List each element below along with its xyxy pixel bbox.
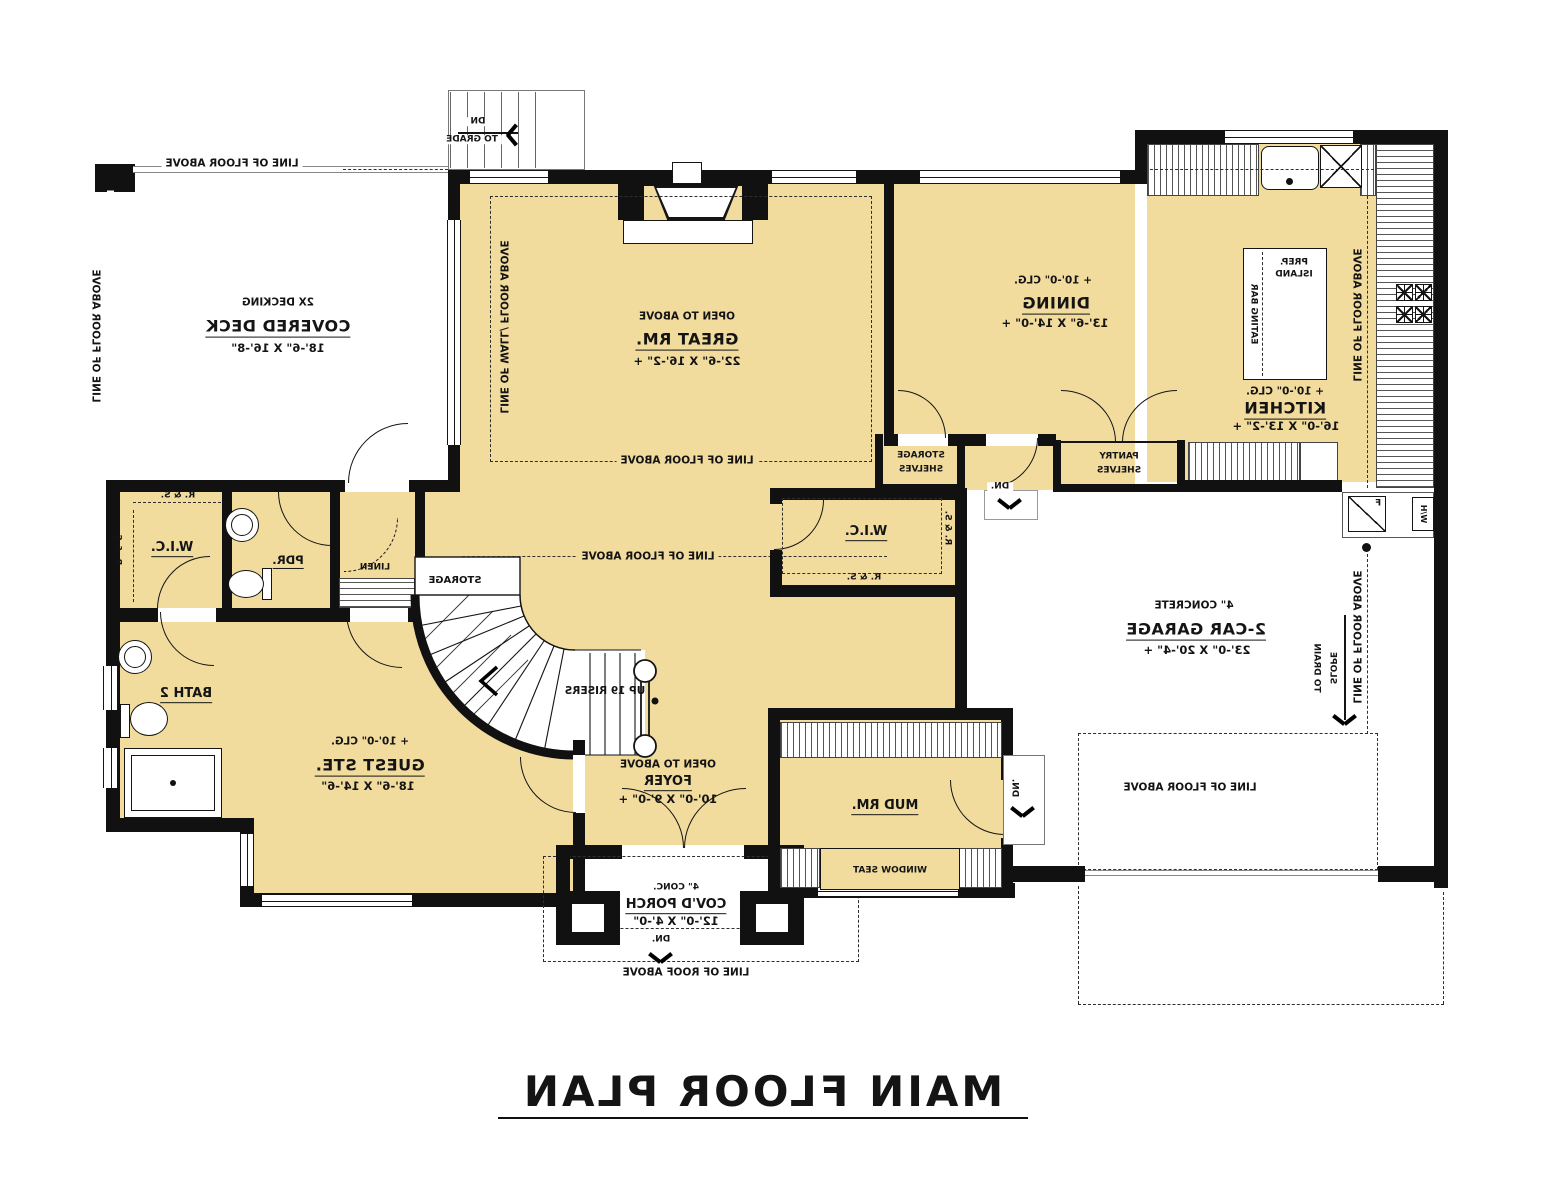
porch-dn-arrow-icon — [648, 952, 674, 964]
window-kitchen-top — [1225, 130, 1353, 144]
great-name: GREAT RM. — [636, 332, 739, 349]
stair-assembly: STORAGE UP 19 RISERS — [393, 543, 683, 778]
pantry-sub: SHELVES — [1097, 466, 1141, 475]
mud-window-seat: WINDOW SEAT — [853, 866, 927, 875]
wic1-shelf-dash-left — [133, 510, 134, 602]
garage-dim: 23'-0" X 20'-4" + — [1143, 644, 1250, 656]
mud-name: MUD RM. — [852, 799, 919, 813]
wic1-name: W.I.C. — [151, 541, 193, 555]
wall-great-dining-divider — [884, 184, 894, 434]
stair-up-risers-label: UP 19 RISERS — [565, 685, 646, 697]
mud-bench-right — [958, 848, 1002, 888]
mud-dn-arrow-icon — [1010, 806, 1036, 818]
kitchen-counter-bottom — [1188, 442, 1300, 482]
window-great-deck — [447, 220, 461, 445]
wall-wic2-south — [770, 585, 965, 597]
kitchen-clg: + 10'-0" CLG. — [1246, 386, 1324, 397]
wall-garage-west — [955, 488, 967, 720]
dining-name: DINING — [1022, 296, 1090, 313]
pdr-toilet-bowl — [228, 570, 264, 598]
kitchen-counter-top-right — [1360, 144, 1376, 196]
mud-bench-left — [780, 848, 820, 888]
cooktop-burner-4 — [1415, 306, 1432, 323]
garage-line-floor-above-right: LINE OF FLOOR ABOVE — [1350, 566, 1361, 707]
guest-dim: 18'-6" X 14'-6" — [321, 780, 414, 792]
window-guest-south — [262, 894, 412, 907]
kitchen-appliance-bottom — [1300, 442, 1338, 482]
wall-right-exterior — [1434, 130, 1448, 888]
garage-door-panel — [1085, 870, 1378, 876]
porch-column-left-core — [572, 904, 604, 932]
great-note: OPEN TO ABOVE — [639, 311, 735, 322]
deck-stair-treads — [450, 92, 536, 168]
wall-pdr-west — [222, 492, 232, 610]
page-title-underline — [498, 1117, 1028, 1119]
window-bath-1 — [103, 666, 118, 710]
window-great-top-2 — [772, 170, 856, 184]
wic1-shelf-dash-top — [133, 502, 221, 503]
kitchen-appliance-x — [1320, 145, 1362, 188]
deck-edge-left — [107, 190, 114, 483]
garage-dash-rect — [1078, 733, 1378, 870]
stair-storage-label: STORAGE — [428, 575, 481, 586]
wic1-rs-left: R. & S. — [112, 531, 121, 566]
fireplace-chimney-notch — [672, 162, 702, 184]
floor-plan-sheet: LINE OF FLOOR ABOVE LINE OF FLOOR ABOVE … — [0, 0, 1553, 1200]
deck-dash-connector — [343, 169, 448, 170]
deck-stair-to-grade: TO GRADE — [442, 135, 502, 144]
foyer-line-floor-above: LINE OF FLOOR ABOVE — [577, 551, 718, 562]
pantry-name: PANTRY — [1099, 452, 1138, 461]
kitchen-dim: 16'-0" X 13'-2" + — [1232, 420, 1339, 432]
cooktop-burner-1 — [1396, 284, 1413, 301]
dining-clg: + 10'-0" CLG. — [1014, 275, 1092, 286]
porch-note: 4" CONC. — [649, 883, 703, 892]
kitchen-line-floor-above: LINE OF FLOOR ABOVE — [1350, 244, 1361, 385]
great-line-floor-above: LINE OF FLOOR ABOVE — [616, 455, 757, 466]
garage-dash-low-bottom — [1078, 1004, 1444, 1005]
wall-mud-west — [768, 708, 780, 898]
bath2-name: BATH 2 — [160, 687, 212, 701]
page-title: MAIN FLOOR PLAN — [521, 1070, 1003, 1114]
bath2-toilet-bowl — [130, 702, 168, 736]
porch-wall-left — [556, 845, 570, 895]
garage-dash-low-left — [1078, 886, 1079, 1004]
wic2-name: W.I.C. — [845, 525, 887, 539]
pdr-name: PDR. — [272, 554, 303, 566]
deck-dim: 18'-6" X 16'-8" — [231, 342, 324, 354]
wall-garage-door-left — [1010, 866, 1085, 882]
bath2-toilet-tank — [120, 704, 130, 738]
window-guest-west — [240, 834, 254, 886]
wall-pantry-bottom — [1053, 484, 1185, 492]
deck-line-floor-above-top: LINE OF FLOOR ABOVE — [161, 158, 302, 169]
pdr-sink — [225, 508, 259, 542]
wic2-rs-bottom: R. & S. — [847, 573, 882, 582]
garage-slope-arrow — [1344, 615, 1346, 720]
island-eating-bar: EATING BAR — [1248, 284, 1257, 345]
window-great-top-1 — [470, 170, 548, 184]
wall-mud-top — [768, 708, 1013, 720]
garage-note: 4" CONCRETE — [1154, 600, 1233, 611]
kitchen-dash-vert — [1367, 196, 1368, 488]
kitchen-dash-top — [1150, 169, 1374, 170]
wic1-rs-top: R. & S. — [161, 491, 196, 500]
wall-bath-south — [106, 818, 252, 832]
great-line-wall-floor: LINE OF WALL/ FLOOR ABOVE — [497, 236, 508, 417]
window-bath-2 — [103, 748, 118, 788]
garage-slope-arrow-head — [1332, 714, 1358, 726]
porch-line-roof-above: LINE OF ROOF ABOVE — [619, 967, 754, 978]
mud-dn-label: DN. — [1009, 779, 1018, 797]
deck-name: COVERED DECK — [206, 319, 351, 336]
cooktop-burner-2 — [1415, 284, 1432, 301]
porch-column-right-core — [756, 904, 788, 932]
hall-dn-arrow-icon — [997, 498, 1023, 510]
porch-dn: DN. — [648, 935, 674, 944]
foyer-name: FOYER — [644, 775, 692, 789]
storage-closet-sub: SHELVES — [899, 465, 943, 474]
deck-line-floor-above-left: LINE OF FLOOR ABOVE — [89, 269, 100, 402]
storage-closet-name: STORAGE — [897, 451, 945, 460]
kitchen-counter-top-left — [1147, 144, 1259, 196]
deck-note: 2X DECKING — [242, 297, 314, 308]
island-eating-bar-dash — [1262, 252, 1263, 376]
kitchen-name: KITCHEN — [1244, 401, 1326, 418]
deck-corner-post — [95, 164, 135, 192]
garage-name: 2-CAR GARAGE — [1126, 622, 1266, 639]
mud-lockers — [780, 722, 1002, 758]
garage-dash-dot — [1362, 543, 1371, 552]
garage-dash-vert — [1367, 554, 1368, 734]
furnace-label: F — [1375, 499, 1381, 508]
island-island: ISLAND — [1275, 270, 1313, 279]
wall-garage-door-right — [1378, 866, 1448, 882]
linen-name: LINEN — [360, 563, 390, 572]
great-dim: 22'-6" X 16'-2" + — [633, 355, 740, 367]
water-heater-label: W/H — [1419, 505, 1427, 523]
dining-dim: 13'-6" X 14'-0" + — [1001, 317, 1108, 329]
dn-landing-garage — [1003, 755, 1045, 845]
cooktop-burner-3 — [1396, 306, 1413, 323]
island-prep: PREP. — [1280, 258, 1308, 267]
stair-dot — [652, 698, 659, 705]
porch-name: COV'D PORCH — [622, 898, 731, 912]
garage-dash-low-right — [1443, 892, 1444, 1004]
bath2-sink — [118, 640, 152, 674]
garage-line-floor-above-in: LINE OF FLOOR ABOVE — [1119, 782, 1260, 793]
porch-dim: 12'-0" X 4'-0" — [629, 915, 722, 927]
deck-stair-arrow-icon — [506, 123, 518, 147]
kitchen-faucet — [1286, 178, 1293, 185]
hall-dn-label: DN. — [987, 482, 1013, 491]
wall-kitchen-south — [1185, 480, 1342, 492]
foyer-note: OPEN TO ABOVE — [620, 759, 716, 770]
window-dining-top — [920, 170, 1120, 184]
bath2-shower-drain — [170, 780, 176, 786]
deck-stair-dn: DN — [466, 117, 489, 126]
garage-to-drain: TO DRAIN — [1311, 643, 1320, 692]
wic2-rs-right: R. & S. — [942, 511, 951, 546]
door-arc-deck — [348, 423, 408, 483]
garage-slope: SLOPE — [1327, 652, 1336, 684]
